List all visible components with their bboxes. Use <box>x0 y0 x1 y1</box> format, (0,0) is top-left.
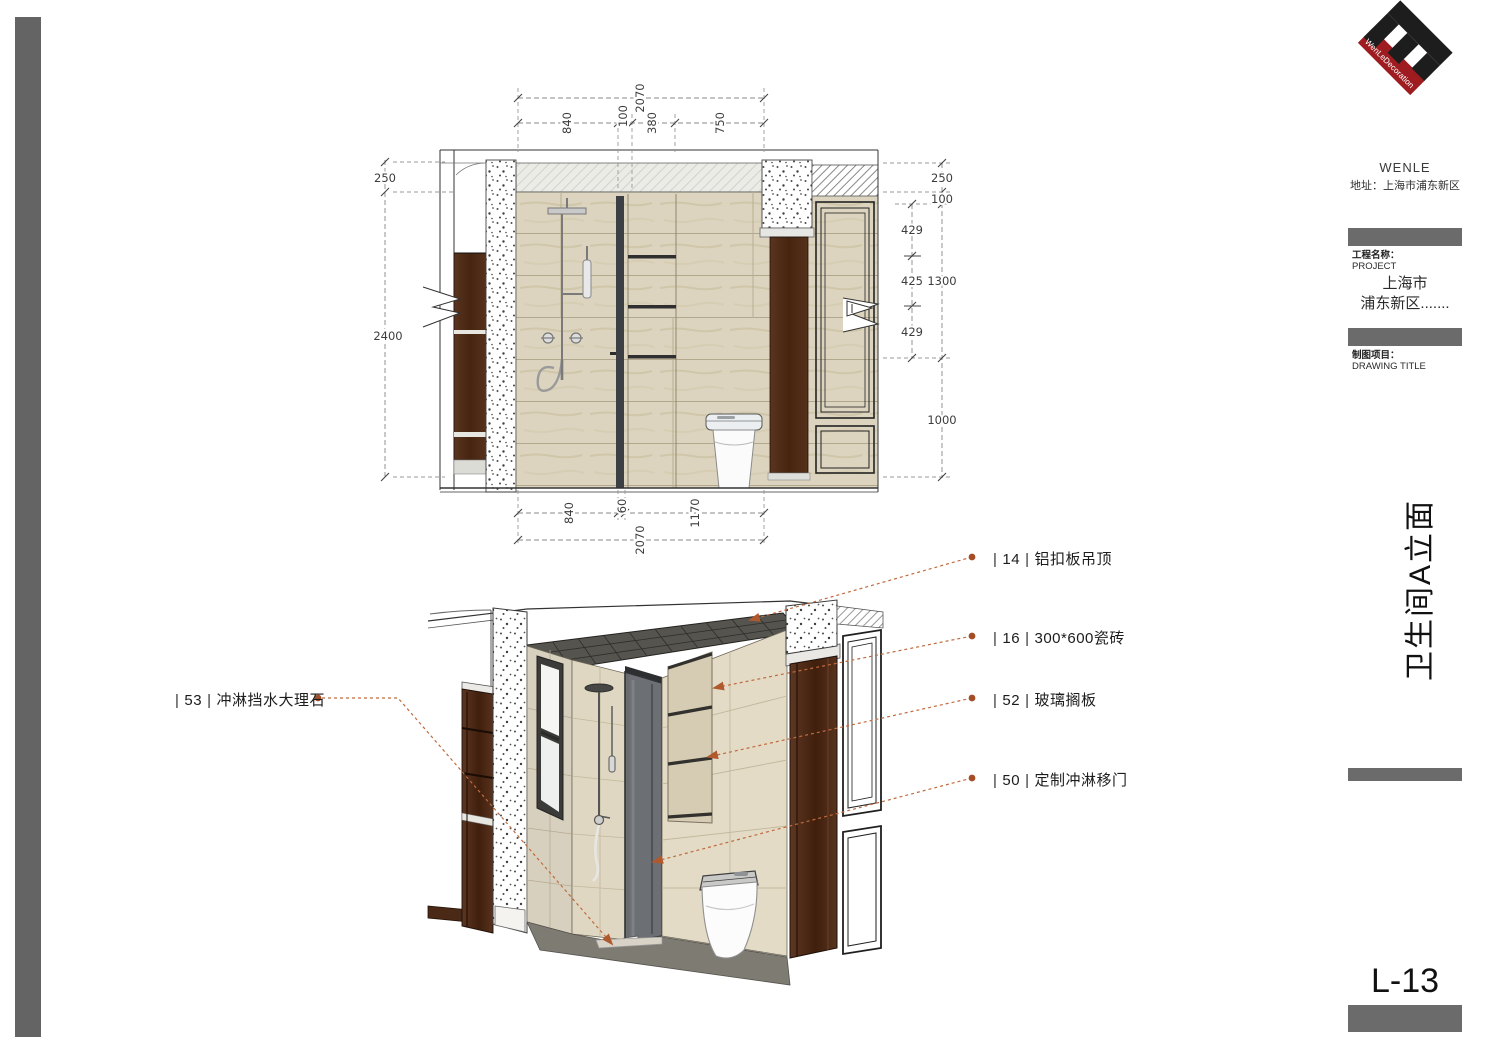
drawing-title-label: 制图项目： <box>1352 350 1426 361</box>
callout-52-num: 52 <box>1002 692 1020 709</box>
svg-text:250: 250 <box>374 171 396 185</box>
divider-bar-3 <box>1348 768 1462 781</box>
perspective-structure <box>428 600 883 985</box>
sheet-title-vertical: 卫生间A立面 <box>1382 470 1452 710</box>
svg-text:1170: 1170 <box>688 498 702 527</box>
callout-53-num: 53 <box>184 692 202 709</box>
callout-16-text: 300*600瓷砖 <box>1035 630 1125 647</box>
callout-14-text: 铝扣板吊顶 <box>1035 551 1113 568</box>
svg-text:250: 250 <box>931 171 953 185</box>
callout-50-num: 50 <box>1002 772 1020 789</box>
bottom-bar <box>1348 1005 1462 1032</box>
left-margin-bar <box>15 17 41 1037</box>
callout-50: |50|定制冲淋移门 <box>988 769 1128 790</box>
sheet-number: L-13 <box>1348 962 1462 1001</box>
divider-bar-2 <box>1348 328 1462 346</box>
svg-text:380: 380 <box>645 112 659 134</box>
callout-14: |14|铝扣板吊顶 <box>988 548 1112 569</box>
callout-14-num: 14 <box>1002 551 1020 568</box>
callout-53: |53|冲淋挡水大理石 <box>170 689 325 710</box>
elevation-structure <box>423 150 878 492</box>
svg-text:429: 429 <box>901 325 923 339</box>
svg-text:750: 750 <box>713 112 727 134</box>
elevation-drawing: 2070 840 100 380 750 840 60 1170 2070 25… <box>355 80 975 580</box>
svg-text:429: 429 <box>901 223 923 237</box>
callout-16-num: 16 <box>1002 630 1020 647</box>
divider-bar-1 <box>1348 228 1462 246</box>
drawing-sheet: 2070 840 100 380 750 840 60 1170 2070 25… <box>0 0 1500 1061</box>
svg-text:1300: 1300 <box>927 274 956 288</box>
project-label: 工程名称： <box>1352 250 1400 261</box>
callout-53-text: 冲淋挡水大理石 <box>217 692 326 709</box>
svg-text:840: 840 <box>562 502 576 524</box>
callout-52-text: 玻璃搁板 <box>1035 692 1097 709</box>
svg-text:425: 425 <box>901 274 923 288</box>
svg-text:2070: 2070 <box>633 525 647 554</box>
svg-text:60: 60 <box>615 499 629 514</box>
svg-text:2070: 2070 <box>633 83 647 112</box>
project-label-en: PROJECT <box>1352 261 1400 272</box>
svg-text:2400: 2400 <box>373 329 402 343</box>
perspective-drawing <box>400 588 910 988</box>
svg-text:100: 100 <box>616 105 630 127</box>
company-name: WENLE <box>1348 160 1462 175</box>
svg-text:1000: 1000 <box>927 413 956 427</box>
callout-52: |52|玻璃搁板 <box>988 689 1097 710</box>
callout-16: |16|300*600瓷砖 <box>988 627 1125 648</box>
project-name: 上海市 浦东新区....... <box>1348 274 1462 314</box>
svg-text:100: 100 <box>931 192 953 206</box>
svg-text:840: 840 <box>560 112 574 134</box>
callout-50-text: 定制冲淋移门 <box>1035 772 1128 789</box>
drawing-title-label-en: DRAWING TITLE <box>1352 361 1426 372</box>
company-name-block: WENLE 地址：上海市浦东新区 <box>1348 160 1462 193</box>
company-logo: WenLeDecoration <box>1348 0 1454 130</box>
company-address: 地址：上海市浦东新区 <box>1348 177 1462 193</box>
